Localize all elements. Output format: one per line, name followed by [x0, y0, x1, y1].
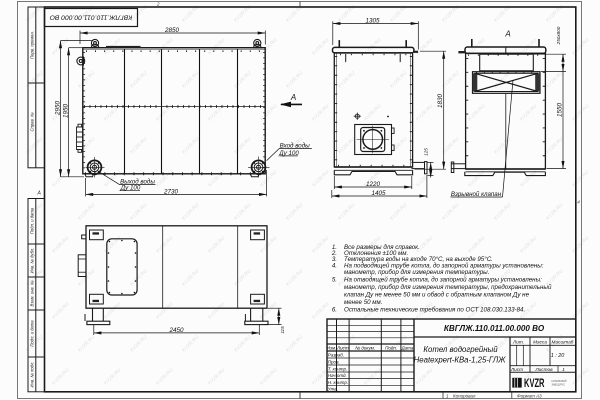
svg-text:Взрывной клапан: Взрывной клапан	[451, 191, 502, 198]
svg-text:Разраб.: Разраб.	[328, 353, 344, 358]
svg-text:Вход воды: Вход воды	[280, 143, 310, 150]
svg-text:Ду 100: Ду 100	[120, 185, 141, 192]
svg-text:1405: 1405	[371, 190, 386, 197]
svg-text:5.: 5.	[332, 276, 337, 283]
svg-text:1950: 1950	[63, 104, 70, 119]
svg-text:Нач.отд.: Нач.отд.	[328, 373, 347, 378]
svg-text:2450: 2450	[168, 327, 184, 334]
svg-text:менее 50 мм.: менее 50 мм.	[344, 299, 383, 306]
svg-text:1220: 1220	[366, 181, 381, 188]
svg-text:250x800: 250x800	[556, 26, 561, 45]
svg-text:1305: 1305	[365, 18, 380, 25]
svg-text:Н. контр.: Н. контр.	[328, 380, 348, 385]
svg-text:КВГЛЖ.110.011.00.000 ВО: КВГЛЖ.110.011.00.000 ВО	[444, 324, 545, 333]
svg-text:Дата: Дата	[400, 346, 413, 351]
svg-text:115: 115	[280, 326, 285, 334]
svg-text:№ докум.: № докум.	[355, 346, 375, 351]
svg-text:Инв. № подл.: Инв. № подл.	[30, 362, 35, 388]
svg-text:Изм.: Изм.	[327, 346, 337, 351]
svg-text:Лист: Лист	[510, 367, 523, 372]
svg-text:Котел водогрейный: Котел водогрейный	[423, 345, 498, 354]
svg-text:Утв.: Утв.	[328, 387, 338, 392]
svg-text:4.: 4.	[332, 262, 337, 269]
svg-text:Справ. №: Справ. №	[30, 112, 35, 131]
svg-text:125: 125	[424, 148, 429, 156]
svg-text:А: А	[290, 93, 296, 102]
svg-text:КОТЕЛЬНЫЙ: КОТЕЛЬНЫЙ	[552, 380, 567, 383]
svg-text:KVZR: KVZR	[524, 376, 545, 390]
svg-text:Взам. инв. №: Взам. инв. №	[30, 280, 35, 306]
svg-text:Инв. № дубл.: Инв. № дубл.	[30, 248, 35, 274]
svg-text:Остальные технические требован: Остальные технические требования по ОСТ …	[344, 306, 525, 313]
svg-text:Формат А3: Формат А3	[517, 394, 542, 399]
svg-text:Подп. и дата: Подп. и дата	[30, 320, 35, 347]
svg-text:1 : 20: 1 : 20	[551, 353, 565, 359]
svg-text:А: А	[37, 191, 42, 197]
svg-text:1830: 1830	[437, 94, 444, 109]
svg-text:6.: 6.	[332, 306, 337, 313]
svg-text:Heatexpert-КВа-1,25-ГЛЖ: Heatexpert-КВа-1,25-ГЛЖ	[414, 355, 507, 364]
svg-text:Лист: Лист	[336, 346, 349, 351]
svg-text:Пров.: Пров.	[328, 360, 340, 365]
svg-text:1550: 1550	[556, 103, 563, 118]
svg-text:2950: 2950	[54, 101, 61, 117]
svg-text:клапан Ду не менее 50 мм и обв: клапан Ду не менее 50 мм и обвод с обрат…	[344, 291, 530, 298]
svg-text:2850: 2850	[164, 27, 180, 34]
svg-text:Т. контр.: Т. контр.	[328, 367, 347, 372]
svg-text:2730: 2730	[163, 189, 179, 196]
svg-text:Подп.: Подп.	[385, 346, 397, 351]
svg-text:Копировал: Копировал	[453, 394, 476, 399]
svg-text:Ду 100: Ду 100	[278, 150, 299, 157]
svg-text:Подп. и дата: Подп. и дата	[30, 207, 35, 234]
svg-text:А: А	[504, 30, 510, 39]
svg-text:ЗАВОД РУС: ЗАВОД РУС	[552, 384, 566, 387]
svg-text:манометр, прибор для измерения: манометр, прибор для измерения температу…	[344, 284, 552, 291]
svg-text:манометр, прибор для измерения: манометр, прибор для измерения температу…	[344, 269, 489, 276]
svg-text:2: 2	[156, 2, 160, 7]
svg-text:Масштаб: Масштаб	[552, 339, 574, 344]
svg-text:Листов: Листов	[534, 367, 553, 372]
svg-text:1: 1	[562, 367, 565, 372]
svg-text:КВГЛЖ.110.011.00.000 ВО: КВГЛЖ.110.011.00.000 ВО	[49, 14, 132, 21]
svg-text:Масса: Масса	[533, 339, 547, 344]
svg-text:На отводящей трубе котла, до з: На отводящей трубе котла, до запорной ар…	[344, 276, 542, 283]
svg-text:Лит.: Лит.	[512, 339, 524, 344]
svg-text:Перв. примен.: Перв. примен.	[30, 31, 35, 59]
